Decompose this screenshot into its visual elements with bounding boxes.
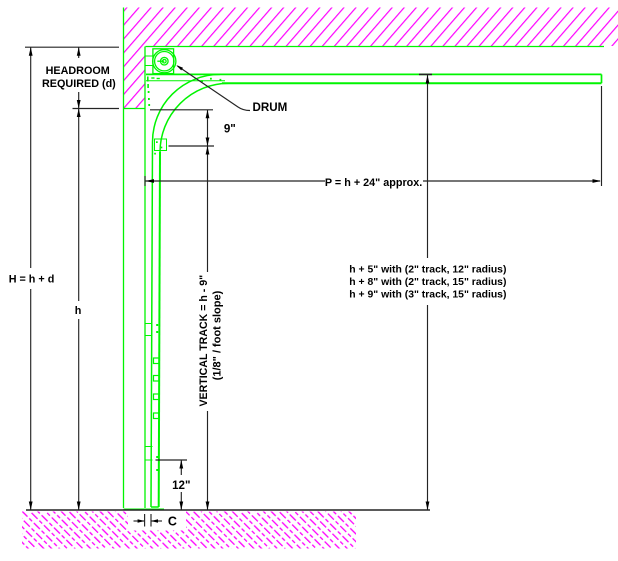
svg-text:h + 5" with (2" track, 12" rad: h + 5" with (2" track, 12" radius) <box>349 264 506 275</box>
svg-text:REQUIRED (d): REQUIRED (d) <box>42 78 116 90</box>
svg-text:HEADROOM: HEADROOM <box>46 65 110 77</box>
svg-text:h + 8" with (2" track, 15" rad: h + 8" with (2" track, 15" radius) <box>349 277 506 288</box>
svg-text:P = h + 24" approx.: P = h + 24" approx. <box>325 177 422 189</box>
svg-text:DRUM: DRUM <box>253 101 288 114</box>
svg-text:H = h + d: H = h + d <box>9 274 55 286</box>
svg-text:C: C <box>168 515 177 529</box>
svg-text:h + 9" with (3" track, 15" rad: h + 9" with (3" track, 15" radius) <box>349 289 506 300</box>
svg-text:12": 12" <box>172 479 190 492</box>
svg-text:9": 9" <box>224 123 236 136</box>
svg-text:h: h <box>75 305 82 317</box>
svg-text:(1/8" / foot slope): (1/8" / foot slope) <box>211 290 223 380</box>
svg-text:VERTICAL TRACK = h - 9": VERTICAL TRACK = h - 9" <box>198 275 210 407</box>
